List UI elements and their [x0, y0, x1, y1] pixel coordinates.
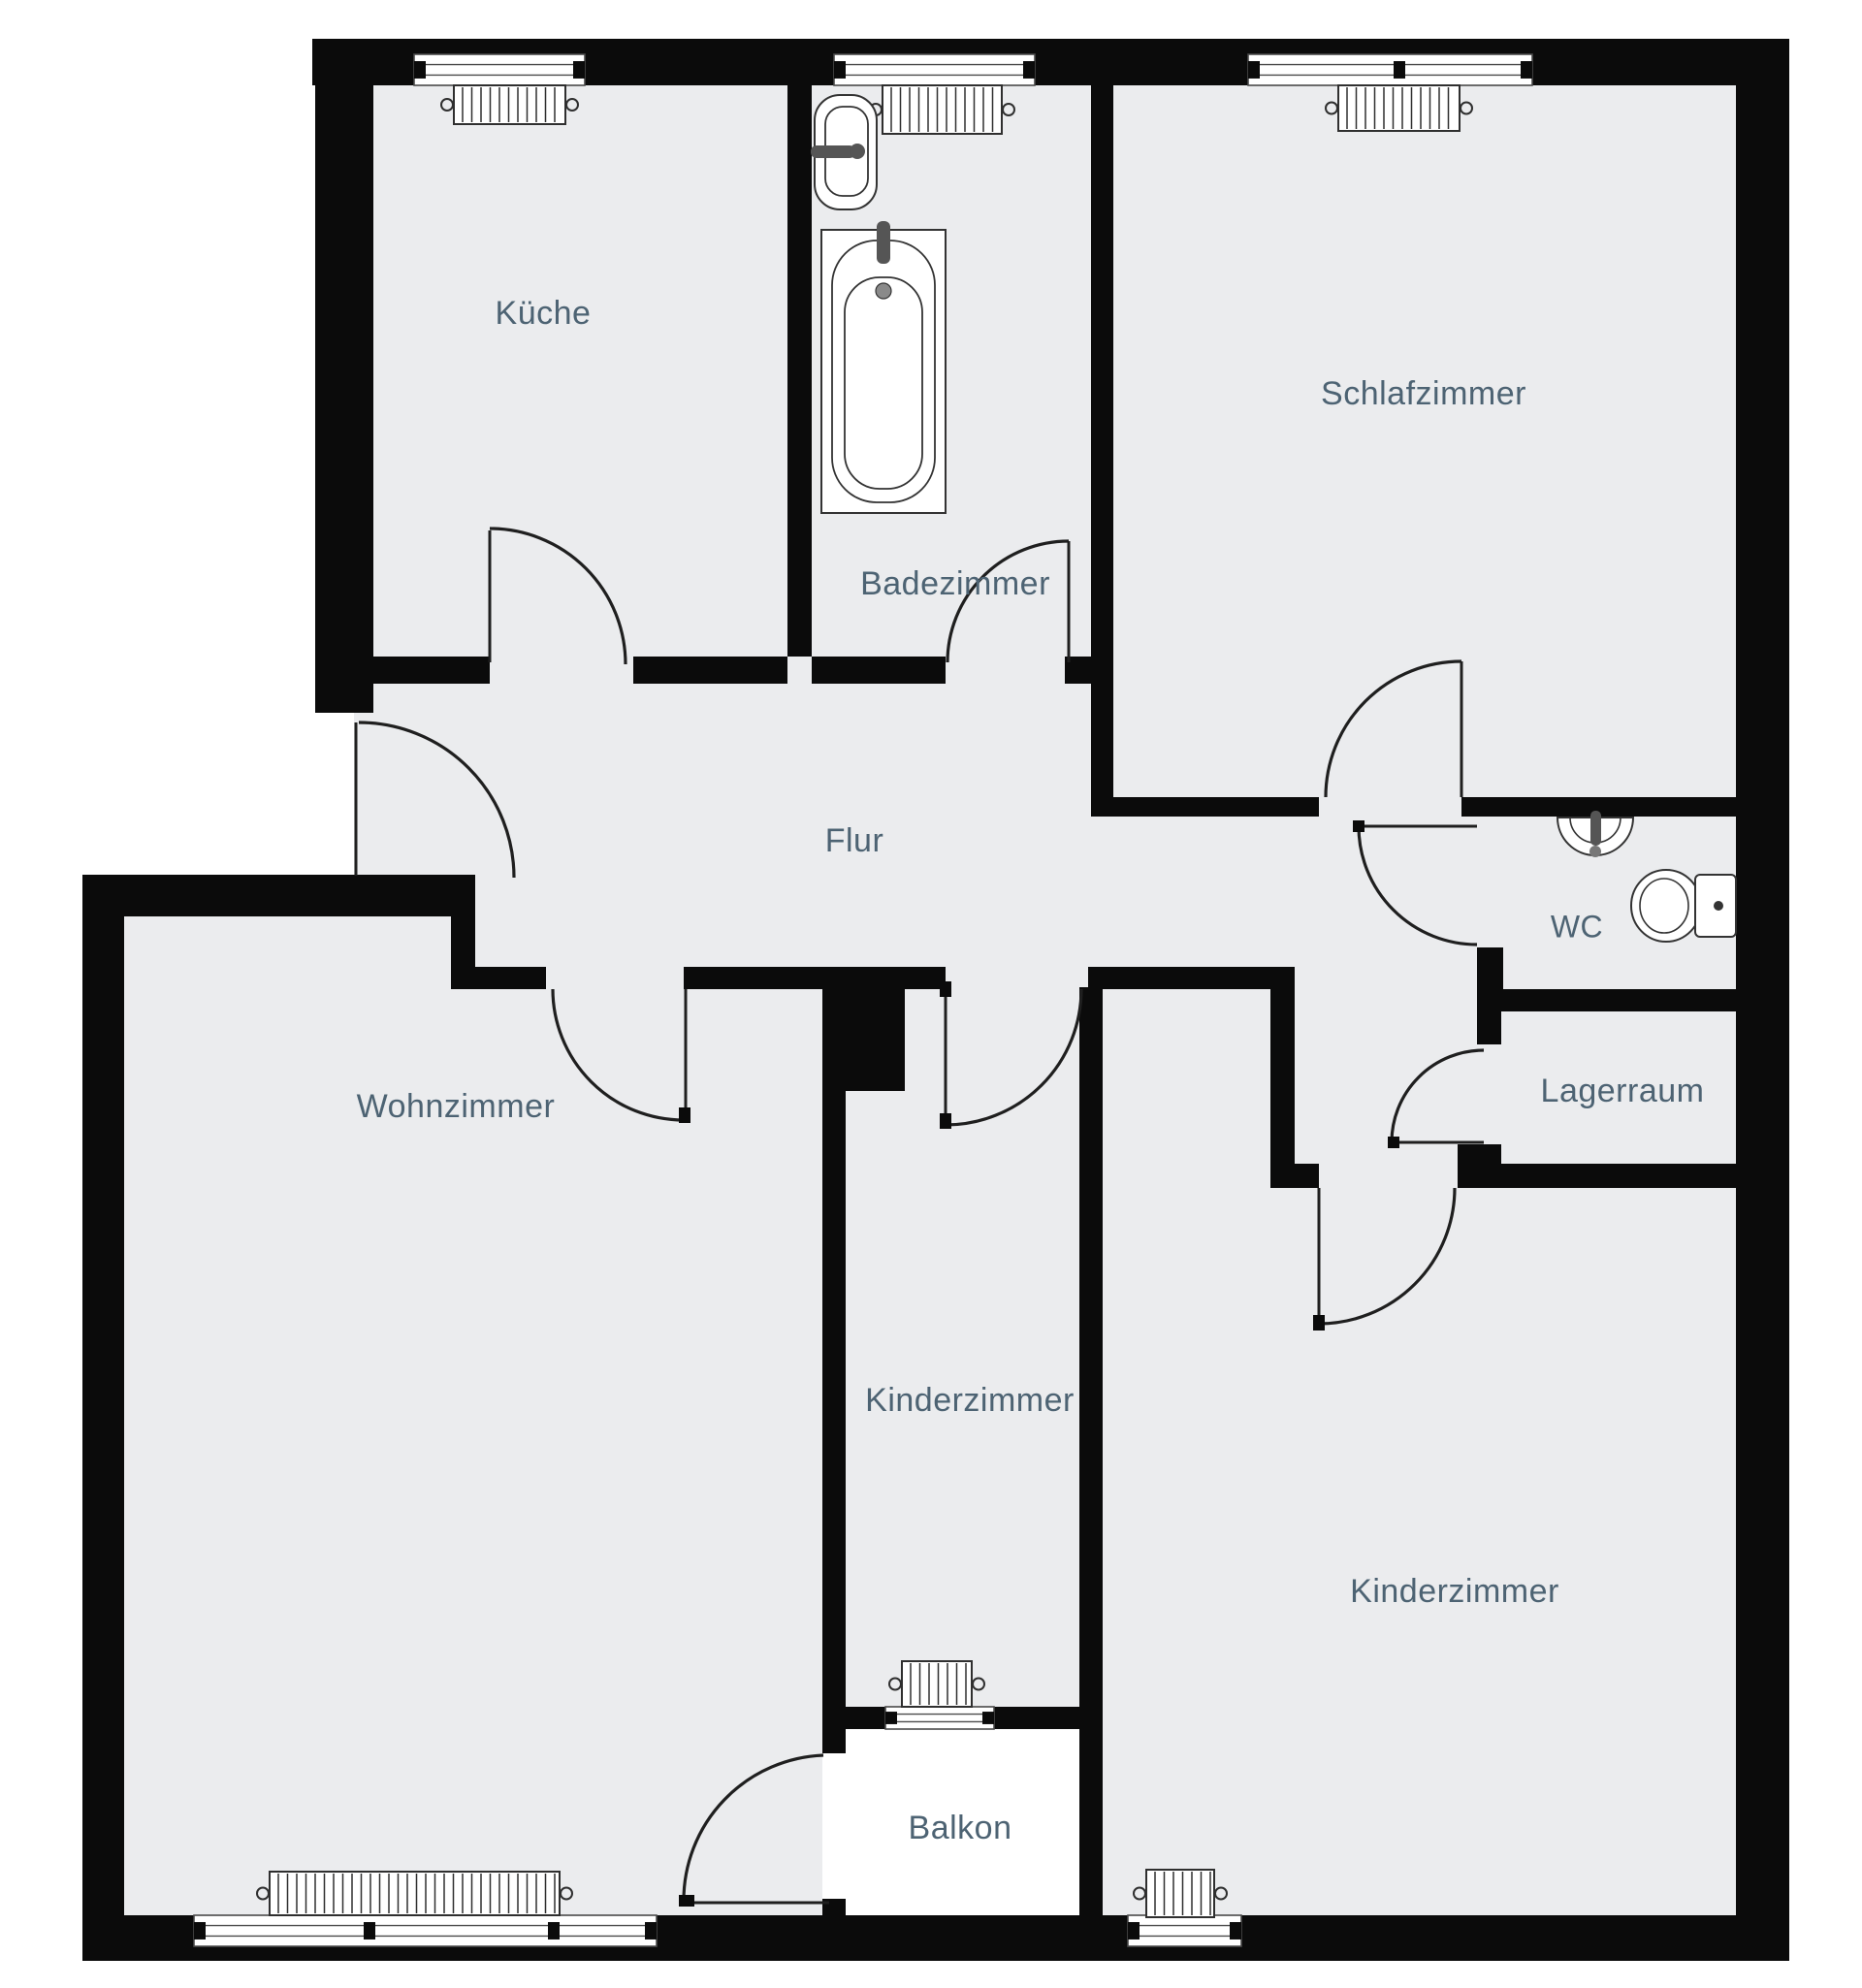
wall-segment	[1079, 987, 1103, 1917]
wall-segment	[315, 39, 373, 713]
window	[1128, 1915, 1241, 1946]
room-upper-block-floor	[354, 85, 1736, 967]
radiator-icon	[870, 85, 1014, 134]
radiator-icon	[889, 1661, 984, 1707]
room-label-kinderzimmer-rechts: Kinderzimmer	[1350, 1573, 1559, 1610]
door-stop-stub	[1388, 1137, 1399, 1148]
room-label-schlafzimmer: Schlafzimmer	[1321, 375, 1526, 412]
window-jamb-tick	[1394, 61, 1405, 79]
window-jamb-tick	[1248, 61, 1260, 79]
room-wohnzimmer-floor	[124, 875, 822, 1915]
wall-segment	[822, 967, 905, 1091]
window-jamb-tick	[573, 61, 585, 79]
room-label-kueche: Küche	[496, 295, 592, 332]
wall-segment	[1088, 967, 1295, 989]
window-jamb-tick	[885, 1712, 897, 1724]
wall-segment	[1458, 1164, 1736, 1188]
room-label-wohnzimmer: Wohnzimmer	[357, 1088, 556, 1125]
wall-segment	[1477, 989, 1736, 1011]
wall-segment	[841, 1707, 885, 1729]
wall-segment	[1461, 797, 1503, 817]
wall-segment	[82, 875, 475, 916]
wall-segment	[812, 657, 946, 684]
bath-sink-icon	[811, 95, 877, 209]
radiator-icon	[441, 85, 578, 124]
wall-segment	[1458, 1144, 1501, 1164]
wall-segment	[1270, 987, 1295, 1164]
window-jamb-tick	[982, 1712, 994, 1724]
wall-segment	[373, 657, 490, 684]
window-jamb-tick	[834, 61, 846, 79]
door-stop-stub	[940, 981, 951, 997]
wall-segment	[994, 1707, 1103, 1729]
window-jamb-tick	[364, 1922, 375, 1940]
door-stop-stub	[1313, 1315, 1325, 1331]
door-stop-stub	[940, 1113, 951, 1129]
floor-plan-svg: KücheBadezimmerSchlafzimmerFlurWCLagerra…	[0, 0, 1862, 1988]
window-jamb-tick	[1521, 61, 1532, 79]
window	[1248, 54, 1532, 85]
room-label-badezimmer: Badezimmer	[860, 565, 1050, 602]
window-jamb-tick	[548, 1922, 560, 1940]
room-label-balkon: Balkon	[909, 1810, 1012, 1846]
bathtub-icon	[821, 221, 946, 513]
window-jamb-tick	[645, 1922, 657, 1940]
floor-plan-page: KücheBadezimmerSchlafzimmerFlurWCLagerra…	[0, 0, 1862, 1988]
wall-segment	[787, 85, 812, 657]
wall-segment	[451, 967, 546, 989]
window-jamb-tick	[414, 61, 426, 79]
room-label-lagerraum: Lagerraum	[1541, 1073, 1705, 1109]
radiator-icon	[1326, 85, 1472, 131]
window-jamb-tick	[194, 1922, 206, 1940]
radiator-icon	[1134, 1870, 1227, 1917]
room-label-kinderzimmer-mitte: Kinderzimmer	[865, 1382, 1075, 1419]
room-label-flur: Flur	[825, 822, 884, 859]
door-stop-stub	[679, 1895, 694, 1907]
wall-segment	[1503, 797, 1736, 817]
wall-segment	[822, 1091, 846, 1753]
wall-segment	[1477, 1011, 1501, 1044]
wall-segment	[1477, 947, 1503, 989]
toilet-icon	[1631, 870, 1736, 942]
wall-segment	[1270, 1164, 1319, 1188]
window	[414, 54, 585, 85]
window	[885, 1707, 994, 1729]
window-jamb-tick	[1128, 1922, 1140, 1940]
radiator-icon	[257, 1872, 572, 1915]
wall-segment	[1091, 797, 1319, 817]
wall-segment	[684, 967, 946, 989]
wall-segment	[1091, 85, 1113, 797]
window	[834, 54, 1035, 85]
wall-segment	[82, 875, 124, 1961]
door-stop-stub	[679, 1107, 690, 1123]
door-stop-stub	[1353, 820, 1364, 832]
wall-segment	[633, 657, 787, 684]
wall-segment	[1736, 39, 1789, 1961]
window	[194, 1915, 657, 1946]
window-jamb-tick	[1023, 61, 1035, 79]
room-label-wc: WC	[1551, 910, 1603, 945]
window-jamb-tick	[1230, 1922, 1241, 1940]
